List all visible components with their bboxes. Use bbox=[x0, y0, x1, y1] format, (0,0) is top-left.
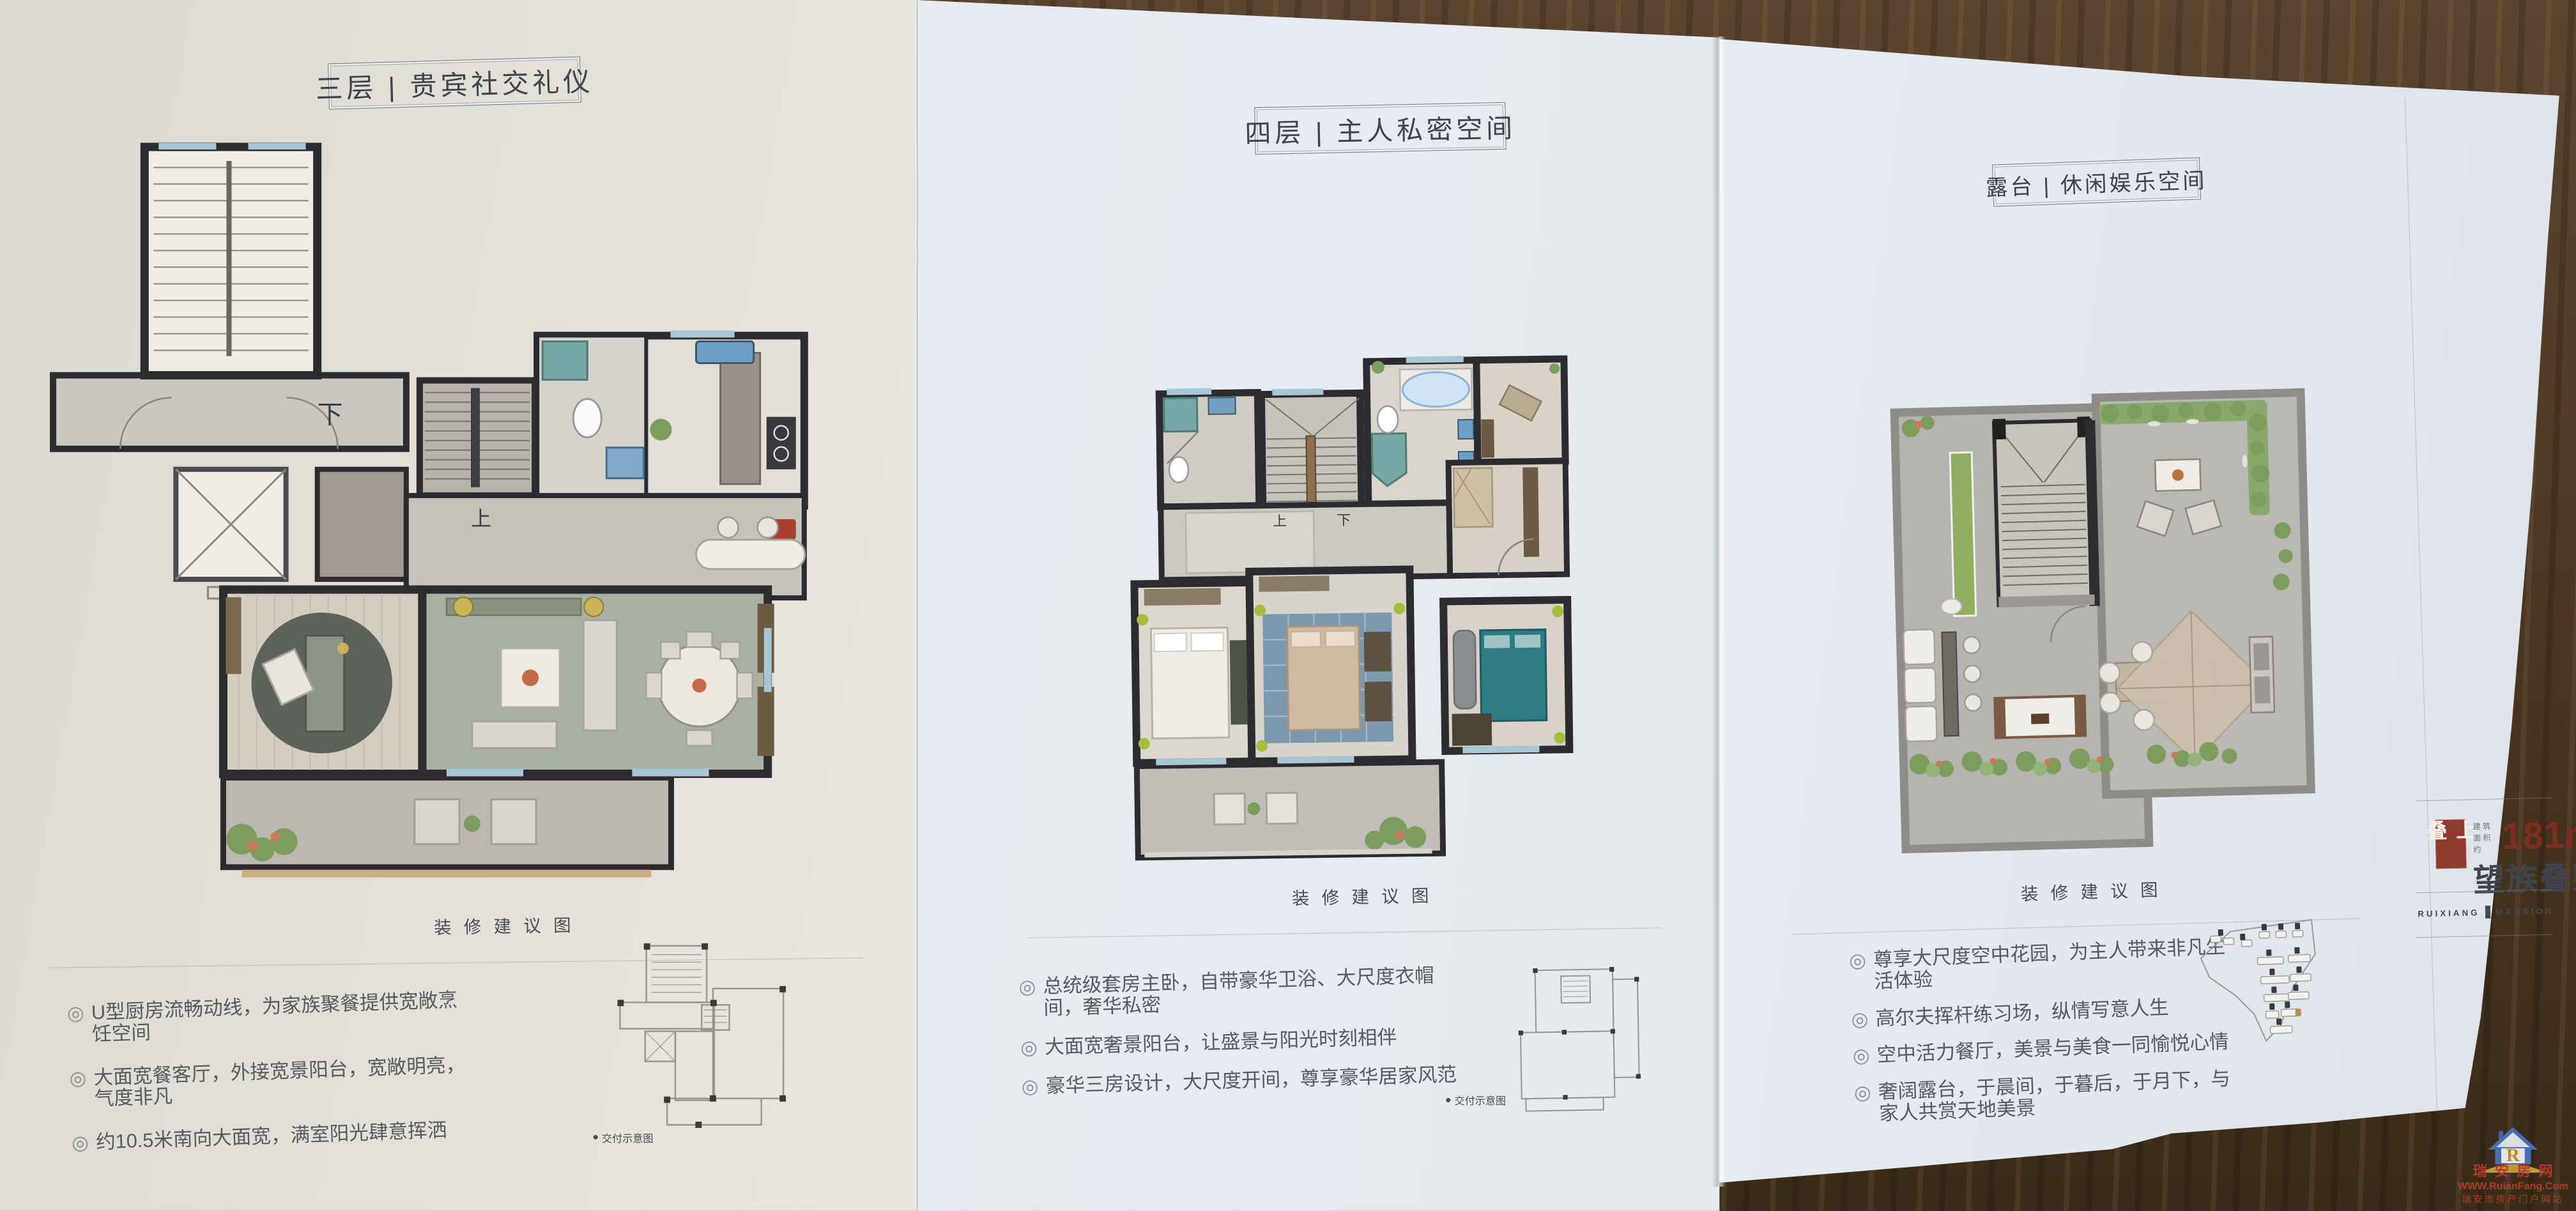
ring-bullet-icon: ◎ bbox=[1018, 977, 1036, 998]
title-floor3: 三层 | 贵宾社交礼仪 bbox=[328, 56, 581, 109]
area-row: 建筑面积约 181m2 bbox=[2472, 818, 2576, 856]
page-fold-right bbox=[1712, 36, 1726, 1187]
feature-bullet: ◎豪华三房设计，大尺度开间，尊享豪华居家风范 bbox=[1021, 1065, 1459, 1099]
floorplan-floor3: 下 上 bbox=[31, 142, 824, 900]
highlighted-building bbox=[2296, 1009, 2301, 1016]
feature-bullet: ◎大面宽餐客厅，外接宽景阳台，宽敞明亮，气度非凡 bbox=[69, 1055, 470, 1111]
title-floor4-text: 四层 | 主人私密空间 bbox=[1244, 107, 1516, 151]
title-floor4: 四层 | 主人私密空间 bbox=[1254, 102, 1506, 155]
page-fold-left bbox=[917, 0, 919, 1211]
product-badge: 上叠 bbox=[2435, 819, 2466, 869]
feature-bullet: ◎空中活力餐厅，美景与美食一同愉悦心情 bbox=[1852, 1032, 2234, 1068]
dot-bullet-icon: ● bbox=[1445, 1094, 1452, 1106]
feature-bullet: ◎约10.5米南向大面宽，满室阳光肆意挥洒 bbox=[71, 1120, 471, 1155]
ring-bullet-icon: ◎ bbox=[1852, 1046, 1870, 1068]
brochure-photo: 三层 | 贵宾社交礼仪 四层 | 主人私密空间 露台 | 休闲娱乐空间 bbox=[0, 0, 2576, 1211]
area-value: 181m2 bbox=[2501, 818, 2576, 854]
stair-up-label: 上 bbox=[471, 507, 491, 530]
ring-bullet-icon: ◎ bbox=[1021, 1076, 1039, 1098]
watermark-site-slogan: 瑞安市房产门户网站 bbox=[2457, 1192, 2570, 1206]
features-floor3: ◎U型厨房流畅动线，为家族聚餐提供宽敞烹饪空间 ◎大面宽餐客厅，外接宽景阳台，宽… bbox=[66, 989, 471, 1177]
stair-up-label: 上 bbox=[1273, 513, 1287, 529]
watermark-site-url: WWW.RuianFang.Com bbox=[2457, 1180, 2570, 1192]
title-terrace: 露台 | 休闲娱乐空间 bbox=[1992, 157, 2201, 207]
brand-line: RUIXIANG MANSION bbox=[2419, 904, 2553, 920]
feature-bullet: ◎大面宽奢景阳台，让盛景与阳光时刻相伴 bbox=[1020, 1026, 1458, 1060]
features-floor4: ◎总统级套房主卧，自带豪华卫浴、大尺度衣帽间，奢华私密 ◎大面宽奢景阳台，让盛景… bbox=[1018, 965, 1460, 1116]
feature-bullet: ◎奢阔露台，于晨间，于暮后，于月下，与家人共赏天地美景 bbox=[1853, 1069, 2236, 1126]
ring-bullet-icon: ◎ bbox=[66, 1003, 84, 1025]
product-name: 望族叠墅 bbox=[2472, 852, 2576, 901]
watermark-site-name: 瑞安房网 bbox=[2457, 1160, 2570, 1180]
features-terrace: ◎尊享大尺度空中花园，为主人带来非凡生活体验 ◎高尔夫挥杆练习场，纵情写意人生 … bbox=[1848, 936, 2237, 1142]
title-floor3-text: 三层 | 贵宾社交礼仪 bbox=[315, 59, 594, 106]
floorplan-floor4: 上 下 bbox=[1112, 354, 1636, 866]
feature-bullet: ◎高尔夫挥杆练习场，纵情写意人生 bbox=[1851, 994, 2233, 1031]
delivery-diagram-floor4 bbox=[1487, 957, 1667, 1115]
floorplan-terrace bbox=[1885, 382, 2345, 871]
delivery-label-floor3: ●交付示意图 bbox=[592, 1130, 653, 1145]
ring-bullet-icon: ◎ bbox=[1020, 1037, 1038, 1059]
delivery-diagram-floor3 bbox=[600, 940, 804, 1141]
dot-bullet-icon: ● bbox=[592, 1131, 599, 1143]
ring-bullet-icon: ◎ bbox=[1848, 950, 1866, 972]
ring-bullet-icon: ◎ bbox=[71, 1133, 89, 1155]
tower-icon bbox=[2485, 906, 2490, 918]
area-prefix: 建筑面积约 bbox=[2472, 821, 2499, 856]
ring-bullet-icon: ◎ bbox=[69, 1068, 87, 1090]
stair-down-label: 下 bbox=[318, 400, 343, 429]
ring-bullet-icon: ◎ bbox=[1851, 1009, 1869, 1031]
delivery-label-floor4: ●交付示意图 bbox=[1445, 1092, 1506, 1108]
title-terrace-text: 露台 | 休闲娱乐空间 bbox=[1985, 162, 2207, 202]
ruianfang-watermark: R 瑞安房网 WWW.RuianFang.Com 瑞安市房产门户网站 bbox=[2457, 1127, 2570, 1206]
stair-down-label: 下 bbox=[1337, 512, 1351, 528]
community-siteplan bbox=[2193, 916, 2323, 1049]
ring-bullet-icon: ◎ bbox=[1853, 1083, 1871, 1105]
